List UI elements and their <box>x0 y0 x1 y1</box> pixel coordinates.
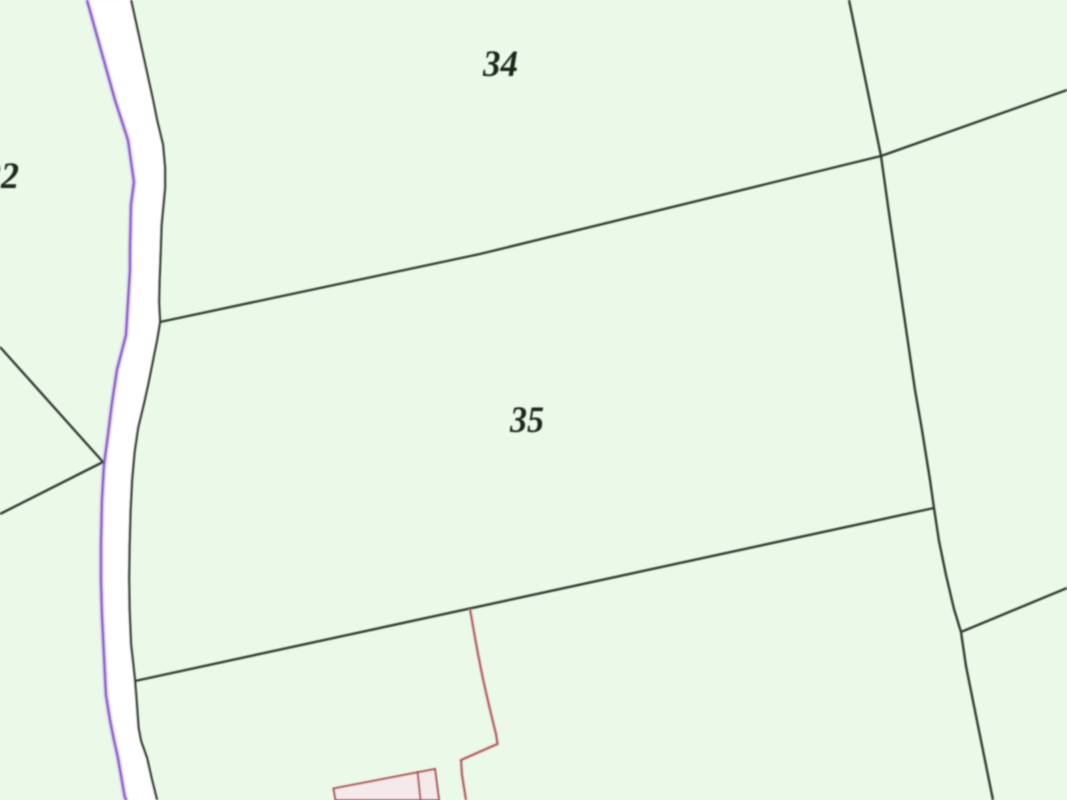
svg-text:32: 32 <box>0 156 19 197</box>
svg-text:35: 35 <box>509 400 544 441</box>
svg-text:34: 34 <box>482 44 518 85</box>
